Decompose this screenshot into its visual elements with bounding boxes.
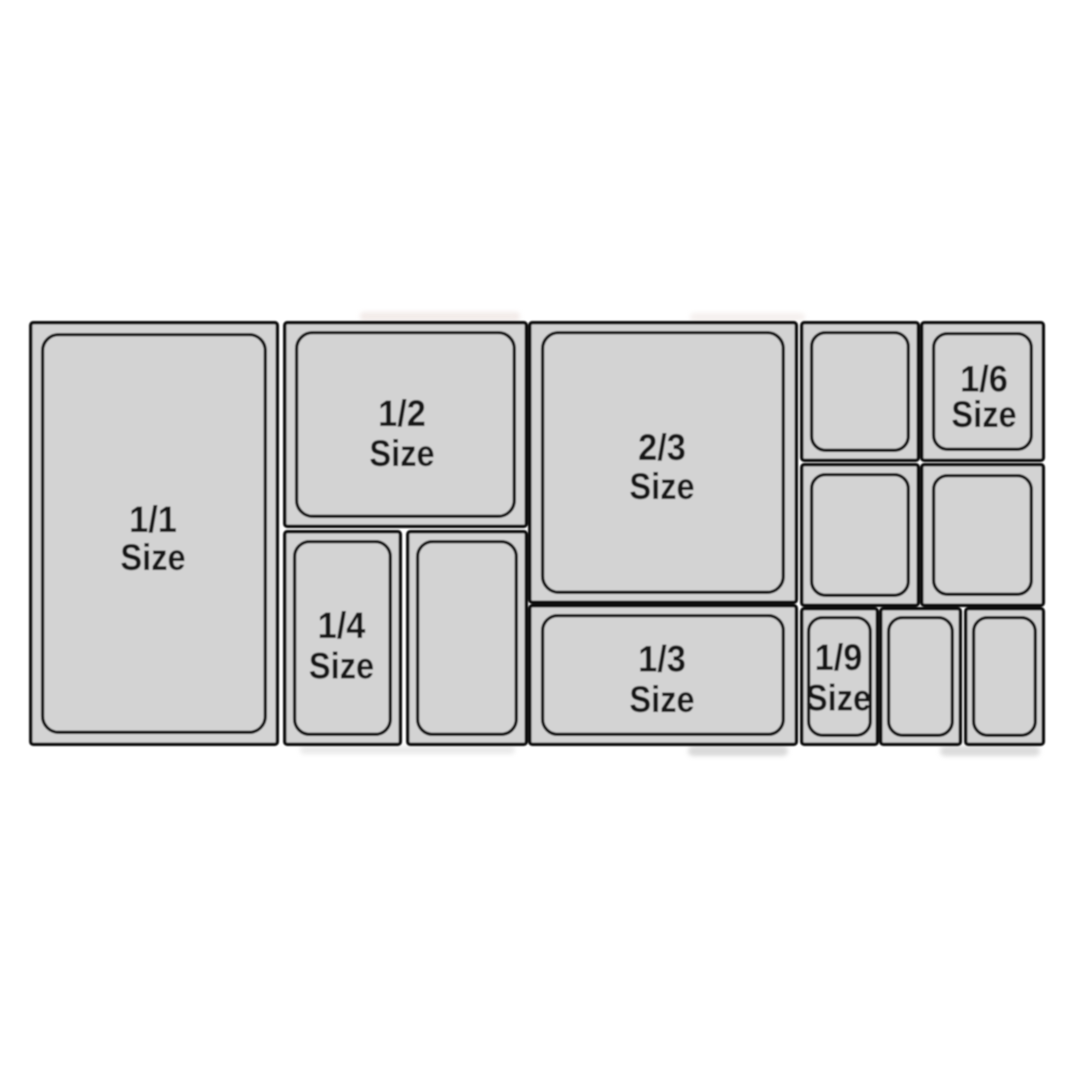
- svg-text:Size: Size: [951, 394, 1016, 435]
- svg-text:1/9: 1/9: [815, 637, 863, 678]
- svg-text:Size: Size: [806, 678, 871, 719]
- svg-text:Size: Size: [369, 433, 434, 474]
- svg-text:1/1: 1/1: [129, 499, 177, 540]
- svg-text:1/3: 1/3: [638, 638, 686, 679]
- svg-text:1/4: 1/4: [318, 605, 366, 646]
- svg-text:1/2: 1/2: [378, 393, 426, 434]
- svg-text:Size: Size: [629, 679, 694, 720]
- svg-text:Size: Size: [629, 466, 694, 507]
- svg-text:2/3: 2/3: [638, 427, 686, 468]
- svg-text:Size: Size: [309, 646, 374, 687]
- svg-text:Size: Size: [120, 537, 185, 578]
